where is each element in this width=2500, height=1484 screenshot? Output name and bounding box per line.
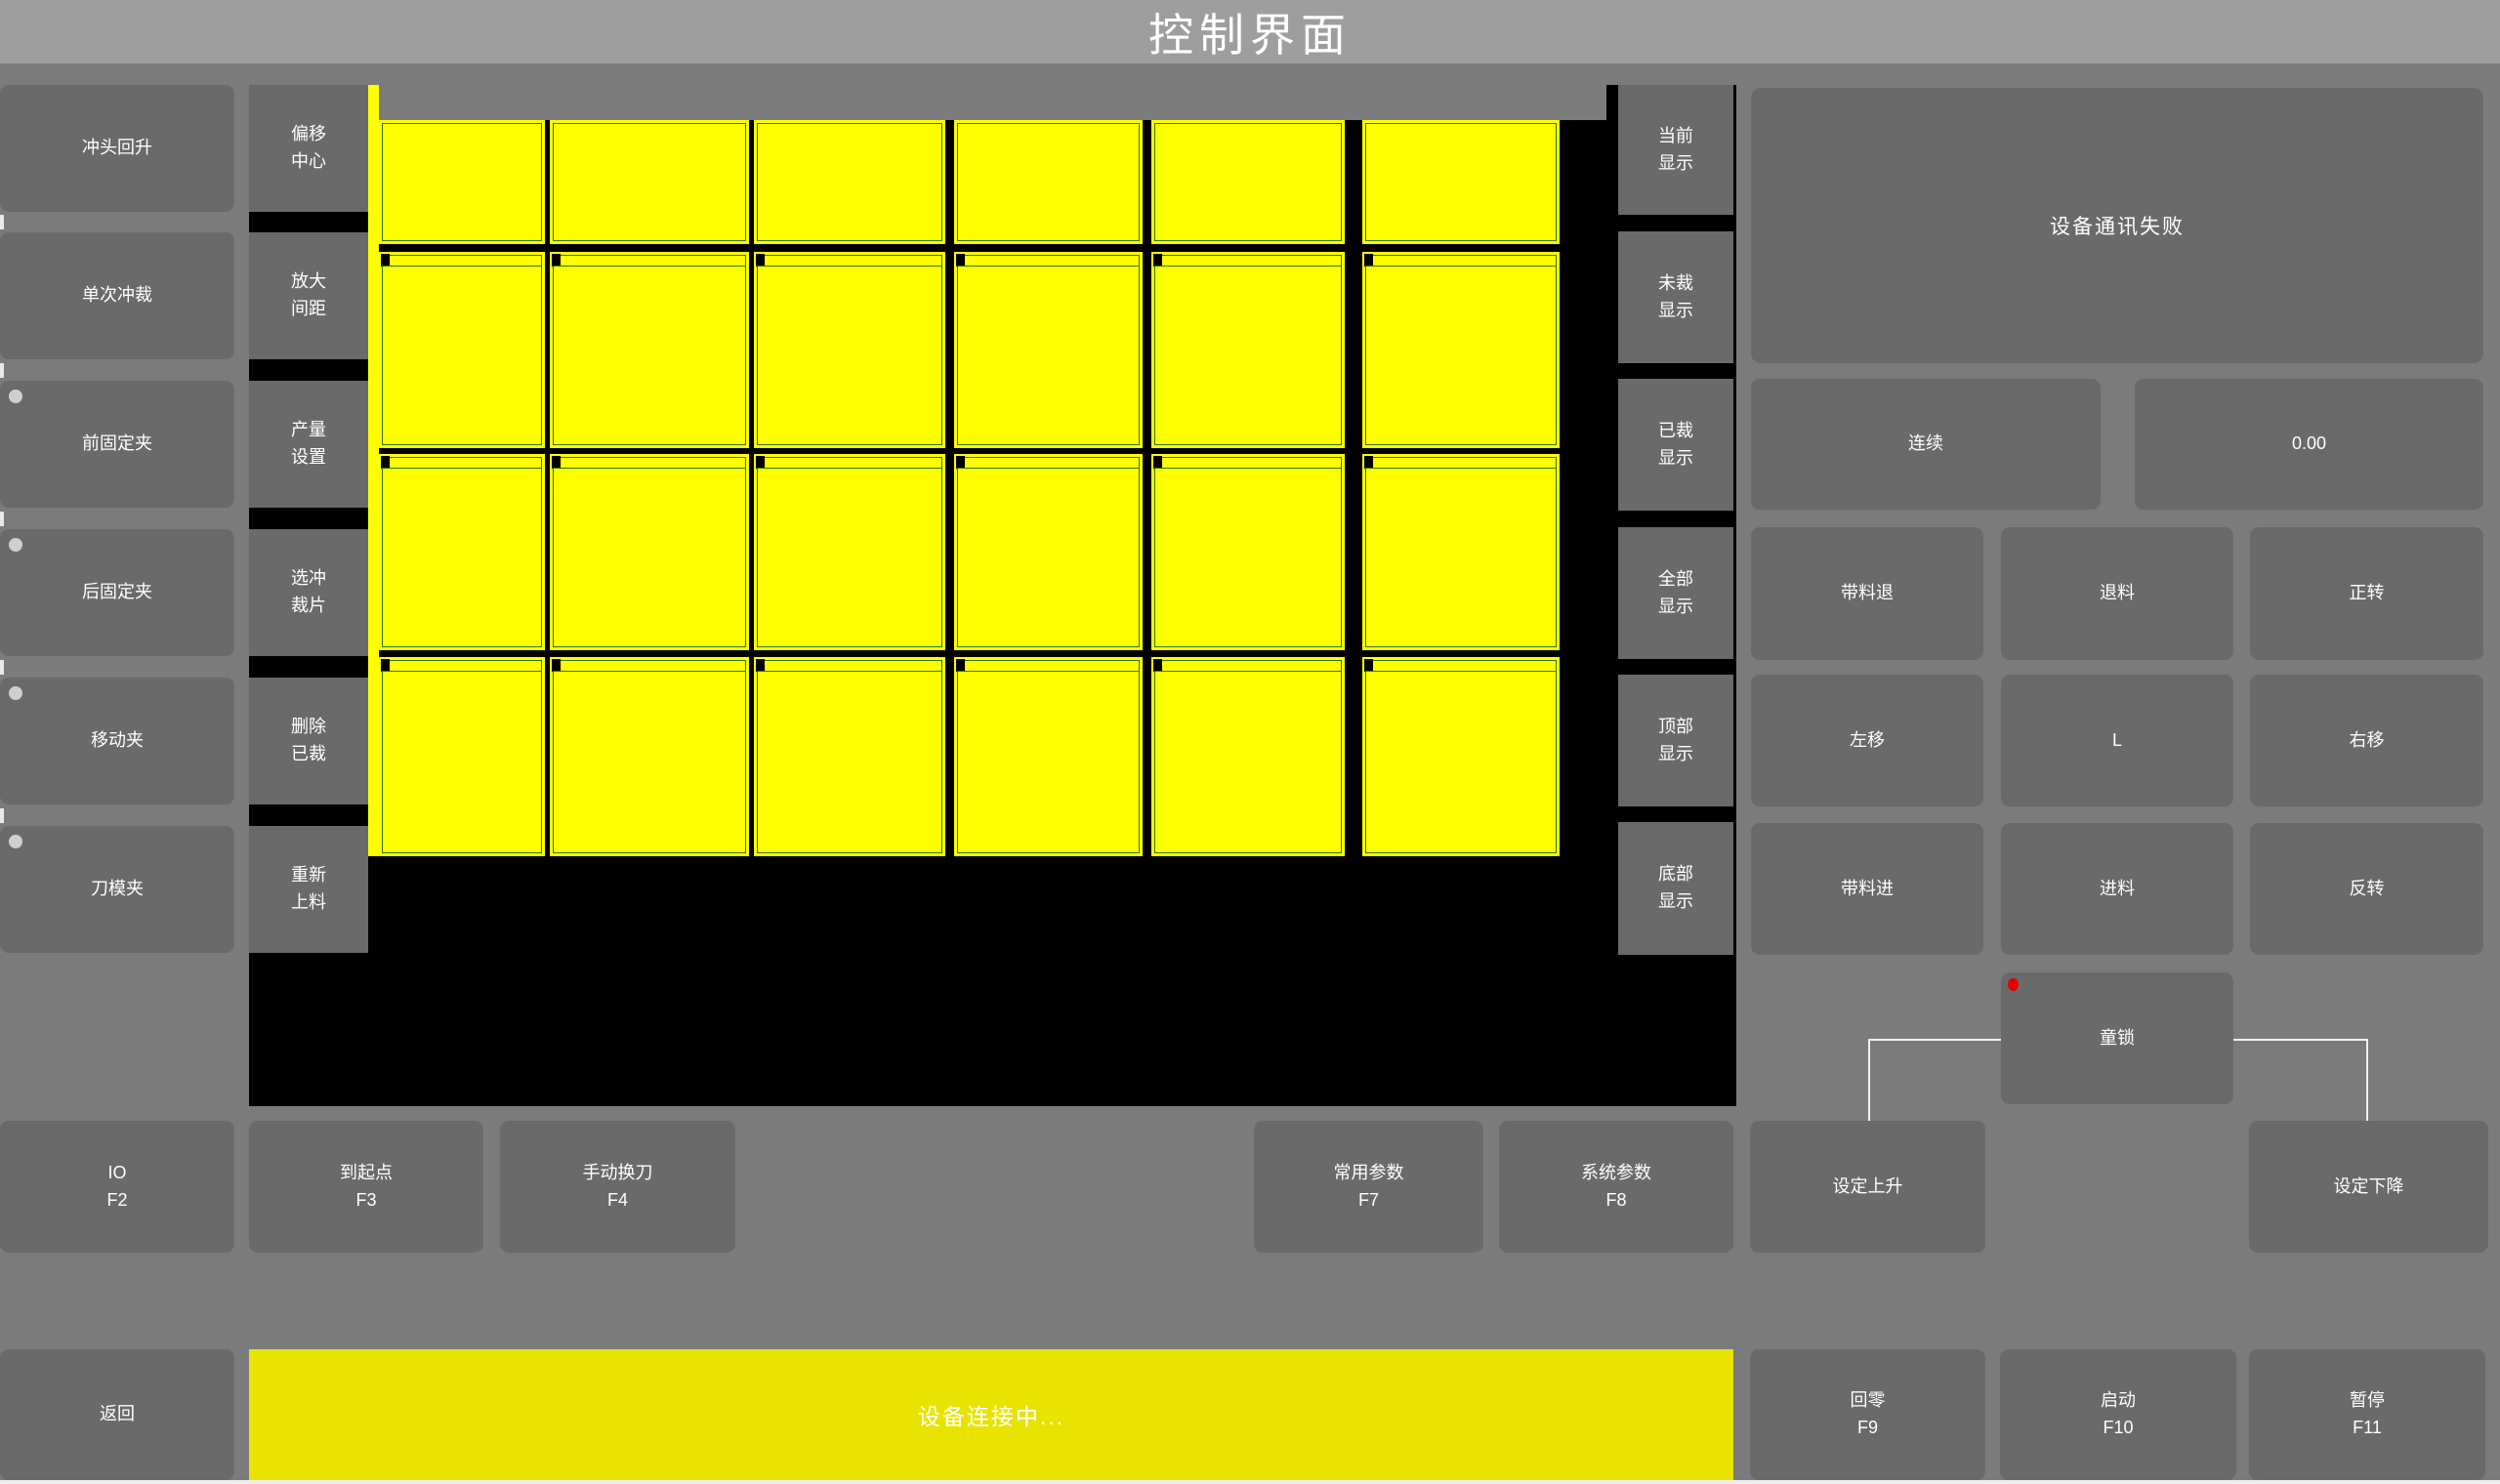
material-feed-button[interactable]: 带料进 [1751,823,1983,955]
button-label: L [2112,727,2122,755]
button-label: 底部 [1658,861,1693,888]
cut-notch [552,254,561,267]
cut-notch [1153,254,1162,267]
status-dot [9,390,22,403]
button-label: 带料退 [1841,580,1894,607]
connector-line [2233,1039,2367,1041]
button-label: 显示 [1658,741,1693,768]
button-label: 暂停 [2350,1387,2385,1415]
home-f9-button[interactable]: 回零F9 [1750,1349,1985,1480]
sheet-piece[interactable] [1151,120,1345,244]
button-label: IO [107,1160,126,1187]
sheet-piece[interactable] [954,657,1143,856]
cut-notch [956,254,965,267]
button-label: F10 [2103,1415,2133,1442]
rear-clamp-button[interactable]: 后固定夹 [0,529,234,656]
sheet-piece[interactable] [1362,657,1560,856]
button-label: 前固定夹 [82,431,152,458]
button-label: 显示 [1658,298,1693,325]
button-label: F11 [2353,1415,2382,1442]
button-label: 冲头回升 [82,135,152,162]
button-label: 放大 [291,268,326,296]
cut-notch [756,456,765,469]
connector-line [2366,1039,2368,1123]
button-label: 单次冲裁 [82,282,152,309]
cut-notch [1153,456,1162,469]
reload-material-button[interactable]: 重新上料 [249,826,368,953]
display-top-button[interactable]: 顶部显示 [1618,675,1733,806]
page-title: 控制界面 [1148,0,1352,64]
status-text: 设备连接中... [918,1398,1064,1431]
button-label: 上料 [291,889,326,917]
cut-notch [956,659,965,672]
device-message: 设备通讯失败 [2050,211,2185,240]
button-label: 显示 [1658,594,1693,621]
sheet-piece[interactable] [954,120,1143,244]
cut-notch [381,254,390,267]
button-label: 正转 [2350,580,2385,607]
button-label: 重新 [291,862,326,889]
button-label: 偏移 [291,121,326,148]
retract-material-button[interactable]: 退料 [2001,527,2233,660]
die-clamp-button[interactable]: 刀模夹 [0,826,234,953]
button-label: 到起点 [340,1160,393,1187]
button-label: 返回 [100,1401,135,1428]
cut-notch [381,659,390,672]
forward-rotate-button[interactable]: 正转 [2250,527,2483,660]
l-button[interactable]: L [2001,675,2233,806]
button-label: F4 [607,1187,628,1215]
button-label: 中心 [291,148,326,176]
sheet-piece[interactable] [379,657,545,856]
status-dot [9,538,22,552]
bottom-edge-line [0,1480,2500,1484]
button-label: 右移 [2350,727,2385,755]
button-label: 左移 [1850,727,1885,755]
button-label: 显示 [1658,888,1693,916]
display-all-button[interactable]: 全部显示 [1618,527,1733,659]
cut-notch [1364,456,1373,469]
sheet-piece[interactable] [754,454,945,650]
edge-tick [0,215,4,229]
sheet-piece[interactable] [754,120,945,244]
button-label: 选冲 [291,565,326,593]
move-right-button[interactable]: 右移 [2250,675,2483,806]
button-label: 全部 [1658,566,1693,594]
sheet-piece[interactable] [550,120,749,244]
button-label: 童锁 [2100,1025,2135,1052]
device-message-box: 设备通讯失败 [1751,88,2483,363]
sheet-piece[interactable] [954,252,1143,448]
status-bar: 设备连接中... [249,1349,1733,1480]
common-params-f7-button[interactable]: 常用参数F7 [1254,1121,1483,1253]
sheet-piece[interactable] [379,454,545,650]
back-button[interactable]: 返回 [0,1349,234,1480]
button-label: 已裁 [1658,418,1693,445]
delete-cut-button[interactable]: 删除已裁 [249,678,368,804]
connector-line [1868,1039,1870,1123]
system-params-f8-button[interactable]: 系统参数F8 [1499,1121,1733,1253]
title-bar: 控制界面 [0,0,2500,63]
button-label: 手动换刀 [583,1160,653,1187]
sheet-sliver-piece [368,85,379,856]
offset-center-button[interactable]: 偏移中心 [249,85,368,212]
edge-tick [0,808,4,823]
button-label: 裁片 [291,593,326,620]
edge-tick [0,512,4,526]
cut-notch [1364,659,1373,672]
sheet-piece[interactable] [1362,252,1560,448]
pause-f11-button[interactable]: 暂停F11 [2249,1349,2485,1480]
cut-notch [756,659,765,672]
button-label: 顶部 [1658,714,1693,741]
button-label: 后固定夹 [82,579,152,606]
set-rise-button[interactable]: 设定上升 [1750,1121,1985,1253]
display-bottom-button[interactable]: 底部显示 [1618,822,1733,955]
edge-tick [0,660,4,675]
button-label: 连续 [1908,431,1943,458]
edge-tick [0,363,4,378]
button-label: F9 [1857,1415,1878,1442]
display-uncut-button[interactable]: 未裁显示 [1618,231,1733,363]
status-dot [9,686,22,700]
button-label: 未裁 [1658,270,1693,298]
button-label: F3 [355,1187,376,1215]
front-clamp-button[interactable]: 前固定夹 [0,381,234,508]
sheet-piece[interactable] [550,252,749,448]
cut-notch [956,456,965,469]
zoom-spacing-button[interactable]: 放大间距 [249,232,368,359]
manual-tool-change-f4-button[interactable]: 手动换刀F4 [500,1121,735,1253]
single-punch-button[interactable]: 单次冲裁 [0,232,234,359]
sheet-piece[interactable] [1362,454,1560,650]
button-label: 退料 [2100,580,2135,607]
sheet-piece[interactable] [550,657,749,856]
status-dot [9,835,22,848]
select-piece-button[interactable]: 选冲裁片 [249,529,368,656]
feed-material-button[interactable]: 进料 [2001,823,2233,955]
button-label: 带料进 [1841,876,1894,903]
io-f2-button[interactable]: IOF2 [0,1121,234,1253]
button-label: 设定下降 [2334,1174,2404,1201]
button-label: 设定上升 [1833,1174,1903,1201]
sheet-piece[interactable] [379,252,545,448]
button-label: 显示 [1658,445,1693,473]
button-label: 间距 [291,296,326,323]
button-label: F8 [1605,1187,1626,1215]
button-label: 启动 [2101,1387,2136,1415]
cut-notch [756,254,765,267]
button-label: 产量 [291,417,326,444]
button-label: 删除 [291,714,326,741]
button-label: 设置 [291,444,326,472]
button-label: 刀模夹 [91,876,144,903]
canvas-top-margin [379,85,1606,120]
value-text: 0.00 [2292,431,2326,458]
button-label: 回零 [1851,1387,1886,1415]
sheet-piece[interactable] [754,252,945,448]
value-display[interactable]: 0.00 [2135,379,2483,510]
sheet-piece[interactable] [1362,120,1560,244]
nesting-canvas [249,85,1736,1106]
button-label: 移动夹 [91,727,144,755]
sheet-piece[interactable] [1151,657,1345,856]
sheet-piece[interactable] [379,120,545,244]
sheet-piece[interactable] [550,454,749,650]
to-origin-f3-button[interactable]: 到起点F3 [249,1121,483,1253]
cut-notch [1153,659,1162,672]
sheet-piece[interactable] [1151,454,1345,650]
display-current-button[interactable]: 当前显示 [1618,85,1733,215]
button-label: 反转 [2350,876,2385,903]
button-label: 常用参数 [1334,1160,1404,1187]
button-label: F2 [106,1187,127,1215]
button-label: F7 [1358,1187,1379,1215]
button-label: 系统参数 [1581,1160,1651,1187]
material-back-button[interactable]: 带料退 [1751,527,1983,660]
button-label: 已裁 [291,741,326,768]
move-left-button[interactable]: 左移 [1751,675,1983,806]
set-lower-button[interactable]: 设定下降 [2249,1121,2488,1253]
sheet-piece[interactable] [1151,252,1345,448]
sheet-piece[interactable] [754,657,945,856]
cut-notch [381,456,390,469]
start-f10-button[interactable]: 启动F10 [2000,1349,2236,1480]
reverse-rotate-button[interactable]: 反转 [2250,823,2483,955]
sheet-piece[interactable] [954,454,1143,650]
continuous-mode-button[interactable]: 连续 [1751,379,2101,510]
display-cut-button[interactable]: 已裁显示 [1618,379,1733,511]
cut-notch [1364,254,1373,267]
cut-notch [552,456,561,469]
button-label: 当前 [1658,123,1693,150]
output-setting-button[interactable]: 产量设置 [249,381,368,508]
alarm-dot [2008,978,2019,991]
cut-notch [552,659,561,672]
button-label: 进料 [2100,876,2135,903]
connector-line [1868,1039,2001,1041]
moving-clamp-button[interactable]: 移动夹 [0,678,234,804]
child-lock-button[interactable]: 童锁 [2001,972,2233,1104]
button-label: 显示 [1658,150,1693,178]
punch-raise-button[interactable]: 冲头回升 [0,85,234,212]
